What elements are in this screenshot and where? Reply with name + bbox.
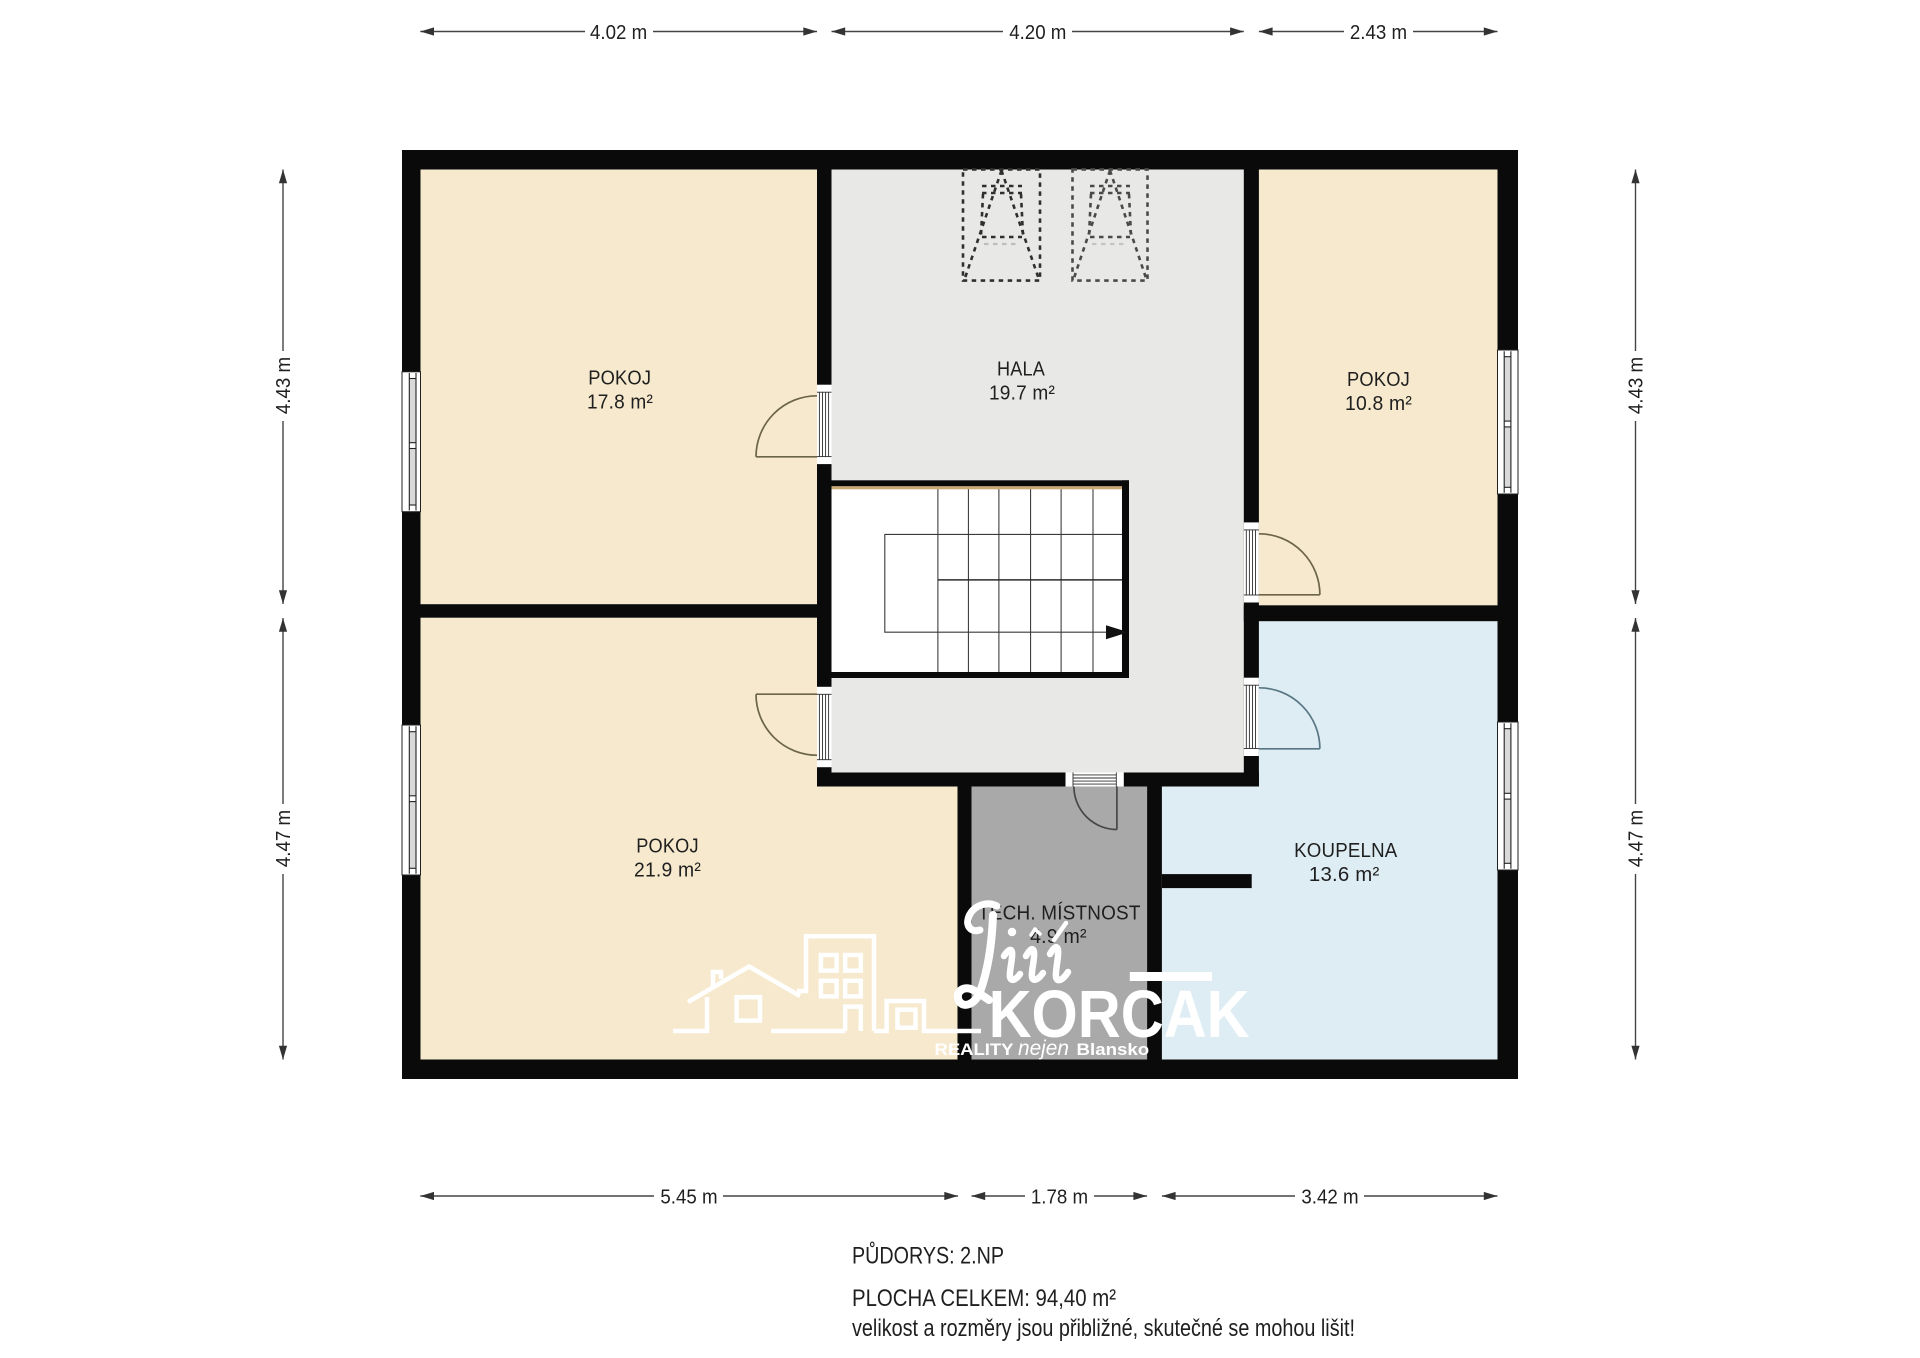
svg-text:HALA: HALA: [997, 358, 1045, 380]
svg-text:POKOJ: POKOJ: [636, 836, 699, 858]
svg-text:10.8 m²: 10.8 m²: [1345, 393, 1412, 415]
svg-text:TECH. MÍSTNOST: TECH. MÍSTNOST: [978, 901, 1141, 924]
svg-text:1.78 m: 1.78 m: [1031, 1187, 1088, 1209]
svg-text:REALITY: REALITY: [935, 1041, 1014, 1059]
svg-text:5.45 m: 5.45 m: [660, 1187, 717, 1209]
svg-text:KOUPELNA: KOUPELNA: [1294, 840, 1398, 862]
svg-text:POKOJ: POKOJ: [1347, 369, 1410, 391]
svg-text:velikost a rozměry jsou přibli: velikost a rozměry jsou přibližné, skute…: [852, 1315, 1355, 1342]
svg-text:Blansko: Blansko: [1077, 1041, 1150, 1059]
svg-text:PŮDORYS: 2.NP: PŮDORYS: 2.NP: [852, 1241, 1004, 1270]
svg-text:2.43 m: 2.43 m: [1350, 22, 1407, 44]
svg-text:19.7 m²: 19.7 m²: [989, 383, 1055, 405]
svg-text:POKOJ: POKOJ: [588, 368, 651, 390]
svg-text:4.47 m: 4.47 m: [273, 810, 295, 867]
svg-text:4.20 m: 4.20 m: [1009, 22, 1066, 44]
svg-text:PLOCHA CELKEM: 94,40 m²: PLOCHA CELKEM: 94,40 m²: [852, 1285, 1116, 1312]
svg-text:21.9 m²: 21.9 m²: [634, 860, 701, 882]
svg-text:3.42 m: 3.42 m: [1301, 1187, 1358, 1209]
svg-text:13.6 m²: 13.6 m²: [1309, 864, 1380, 886]
svg-text:17.8 m²: 17.8 m²: [587, 392, 653, 414]
svg-text:4.43 m: 4.43 m: [273, 357, 295, 414]
svg-text:nejen: nejen: [1018, 1037, 1069, 1060]
svg-text:4.43 m: 4.43 m: [1626, 357, 1648, 414]
svg-text:4.02 m: 4.02 m: [590, 22, 647, 44]
svg-text:4.47 m: 4.47 m: [1626, 810, 1648, 867]
